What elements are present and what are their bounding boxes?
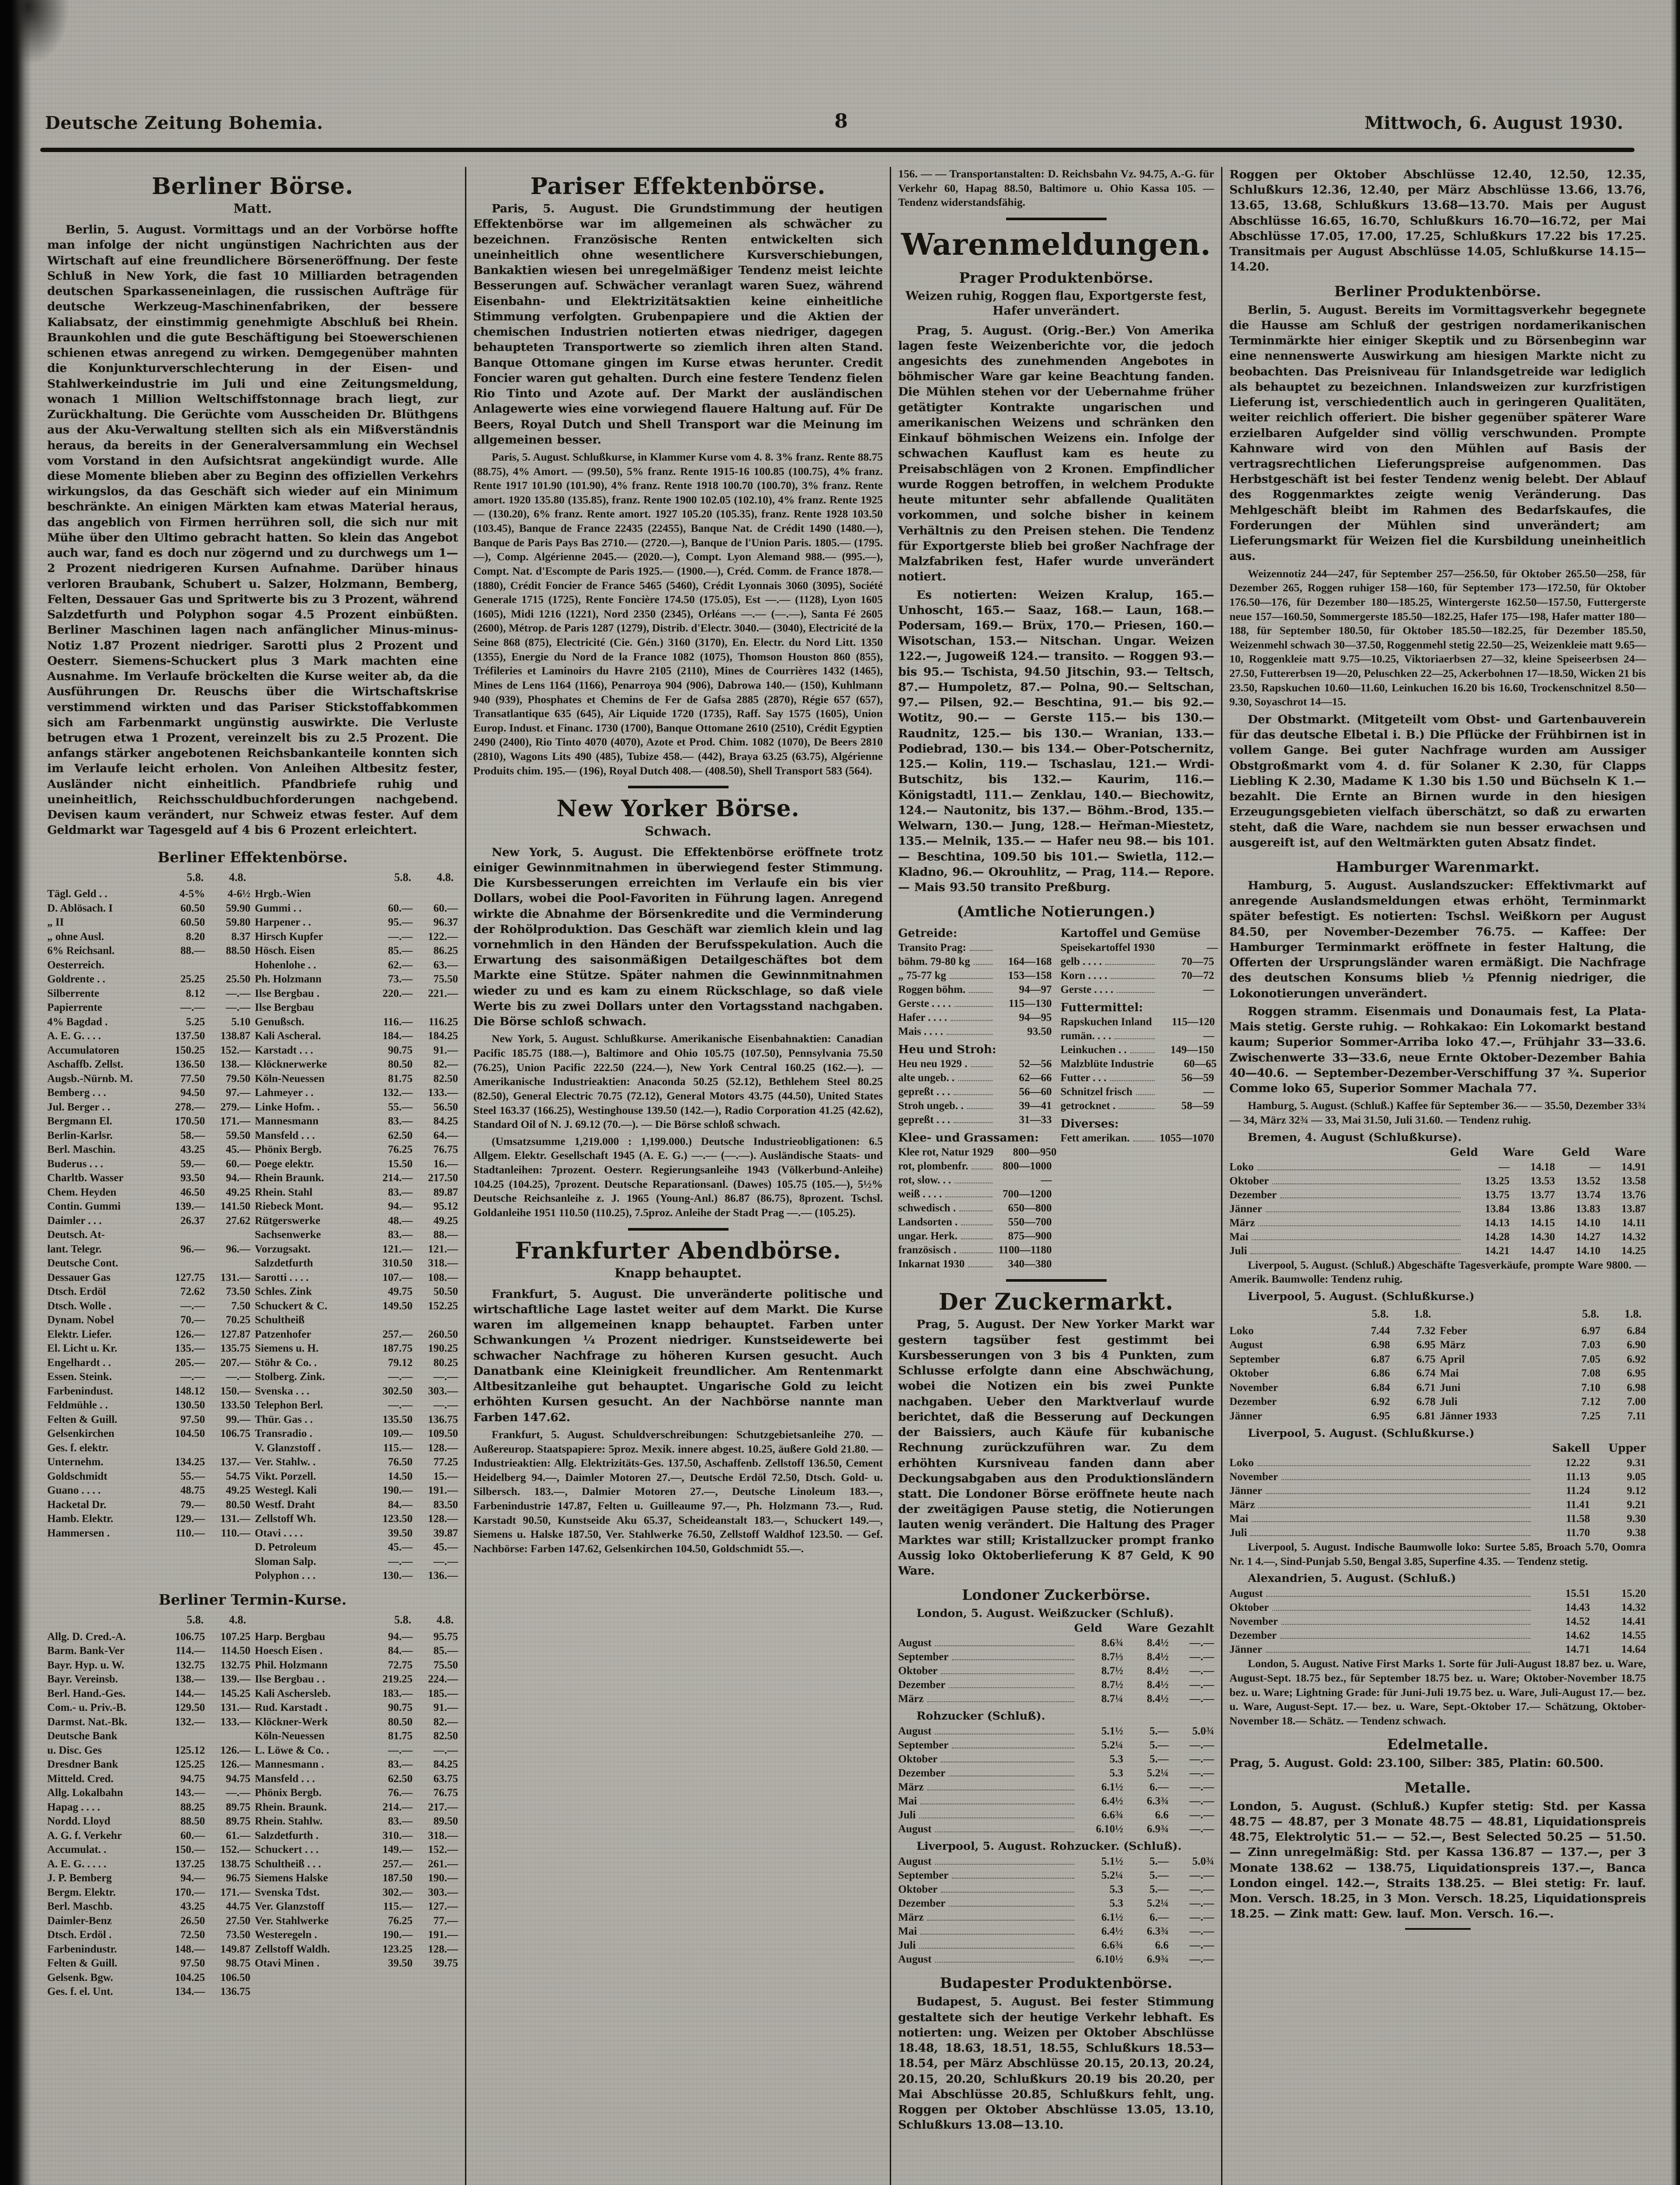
month: Jänner [1229,1484,1262,1498]
price-previous: 152.25 [413,1299,458,1314]
price-current: 25.25 [160,972,205,987]
price-current: 76.50 [367,1455,413,1470]
item-price: 62—66 [996,1071,1052,1085]
item-name: Leinkuchen . . [1061,1043,1127,1057]
month: Oktober [898,1752,937,1766]
security-name: Bergmann El. [47,1114,160,1129]
quote-row: Mannesmann . 83.— 84.25 [255,1758,458,1772]
cotton-row: November 11.13 9.05 [1229,1470,1646,1484]
quote-row: D. Petroleum 45.— 45.— [255,1540,458,1555]
security-name: 6% Reichsanl. [47,944,160,958]
quote-row: Ilse Bergbau . 220.— 221.— [255,987,458,1001]
price-row: Fett amerikan. 1055—1070 [1061,1131,1215,1145]
item-name: Inkarnat 1930 [898,1257,965,1271]
price-current: 85.— [367,944,413,958]
security-name: Rud. Karstadt . [255,1701,367,1715]
security-name: Accumulat. . [47,1843,160,1857]
security-name: Mitteld. Cred. [47,1772,160,1786]
upper-price: 9.30 [1590,1512,1646,1526]
price-current: 104.50 [160,1427,205,1441]
price-previous: 133.50 [205,1398,250,1413]
subheading-budapester-produktenboerse: Budapester Produktenbörse. [898,1974,1214,1991]
price-current: 115.— [367,1441,413,1456]
price-previous: 84.25 [413,1758,458,1772]
table-date-header: 5.8. 4.8. [255,1613,458,1627]
security-name: Schultheiß . . . [255,1857,367,1872]
quote-row: D. Ablösach. I 60.50 59.90 [47,902,250,916]
price-previous: 73.50 [205,1285,250,1299]
item-price: 60—65 [1161,1057,1217,1071]
quote-row: September 6.87 6.75 [1229,1353,1436,1367]
month: Loko [1229,1160,1254,1174]
ware: 5.— [1123,1883,1169,1897]
date-col-a: 5.8. [1582,1307,1599,1321]
price-rows: Fett amerikan. 1055—1070 [1061,1131,1215,1145]
quote-row: Linke Hofm. . 55.— 56.50 [255,1100,458,1115]
ware: 6.6 [1123,1808,1169,1822]
geld-a: 14.21 [1464,1244,1510,1258]
item-name: Rapskuchen Inland [1061,1015,1152,1029]
columns: Berliner Börse. Matt. Berlin, 5. August.… [40,167,1653,2185]
sakell-price: 11.70 [1534,1526,1590,1540]
quote-row: Dezember 6.92 6.78 [1229,1395,1436,1409]
leader-dots [954,1122,993,1123]
col-ware: Ware [1102,1622,1158,1634]
quote-row: Dtsch. Erdöl . 72.50 73.50 [47,1928,250,1942]
price-current: 6.86 [1345,1366,1390,1381]
price-previous: 76.75 [413,1786,458,1800]
price-current: 14.52 [1534,1615,1590,1629]
security-name: Chem. Heyden [47,1186,160,1200]
group-heu-stroh: Heu und Stroh: [898,1043,1052,1056]
price-previous: 64.— [413,1129,458,1143]
quote-row: Bergmann El. 170.50 171.— [47,1114,250,1129]
security-name: Hacketal Dr. [47,1498,160,1512]
price-current: 187.75 [367,1342,413,1356]
security-name: Deutsche Bank [47,1729,160,1744]
price-previous: —.— [413,1744,458,1758]
geld-b: 14.27 [1555,1230,1600,1244]
price-previous: 171.— [205,1114,250,1129]
quote-row: Schultheiß . . . 257.— 261.— [255,1857,458,1872]
cotton-row: Jänner 14.71 14.64 [1229,1643,1646,1657]
sakell-price: 11.24 [1534,1484,1590,1498]
caption-alexandrien: Alexandrien, 5. August. (Schluß.) [1229,1572,1646,1585]
security-name: Com.- u. Priv.-B. [47,1701,160,1715]
price-current: 8.20 [160,930,205,944]
ware-a: 14.18 [1510,1160,1555,1174]
item-name: Gerste . . . . [1061,983,1114,997]
quote-row: Hösch. Eisen 85.— 86.25 [255,944,458,958]
security-name: Essen. Steink. [47,1370,160,1384]
price-rows: Heu neu 1929 . 52—56 alte ungeb. . 62—66 [898,1057,1052,1127]
price-row: rot, plombenfr. 800—1000 [898,1159,1052,1173]
security-name: Farbenindust. [47,1384,160,1399]
security-name: Patzenhofer [255,1328,367,1342]
price-previous: 6.74 [1390,1366,1436,1381]
price-row: böhm. 79-80 kg 164—168 [898,955,1052,969]
item-price: 800—1000 [996,1159,1052,1173]
item-price: 52—56 [996,1057,1052,1071]
leader-dots [927,1701,1074,1702]
price-current: 6.92 [1345,1395,1390,1409]
price-previous: 279.— [205,1100,250,1115]
section-divider [628,786,729,788]
price-previous: 121.— [413,1242,458,1257]
price-previous: 99.— [205,1413,250,1427]
price-current: 170.50 [160,1114,205,1129]
price-previous: 50.50 [413,1285,458,1299]
quote-row: Ver. Stahlw. . 76.50 77.25 [255,1455,458,1470]
price-current: 81.75 [367,1729,413,1744]
geld: 6.1½ [1078,1911,1123,1925]
price-current: 14.43 [1534,1601,1590,1615]
price-previous: 136.75 [413,1413,458,1427]
leader-dots [960,1252,992,1253]
price-previous: 49.25 [205,1484,250,1498]
ware-a: 14.15 [1510,1216,1555,1230]
item-name: Schnitzel frisch [1061,1085,1133,1099]
price-previous: 6.90 [1600,1338,1646,1353]
quote-row: Westeregeln . 190.— 191.— [255,1928,458,1942]
price-previous: 88.50 [205,944,250,958]
subheading-hamburger-warenmarkt: Hamburger Warenmarkt. [1229,858,1646,875]
cotton-row: Dezember 14.62 14.55 [1229,1629,1646,1643]
prag-town-quotes: Es notierten: Weizen Kralup, 165.— Unhos… [898,587,1214,895]
geld: 5.2¼ [1078,1869,1123,1883]
price-current: 88.— [160,944,205,958]
price-current: 137.50 [160,1029,205,1044]
security-name: Kali Aschersleb. [255,1687,367,1701]
price-current: 116.— [367,1015,413,1030]
price-previous: 27.50 [205,1914,250,1928]
roggen-mais-continuation: Roggen per Oktober Abschlüsse 12.40, 12.… [1229,167,1646,275]
item-name: Hafer . . . . [898,1011,947,1025]
price-current: —.— [160,1001,205,1015]
price-previous: 184.25 [413,1029,458,1044]
price-row: Roggen böhm. 94—97 [898,983,1052,997]
termin-table-right: 5.8. 4.8. Harp. Bergbau 94.— 95.75 [255,1611,458,1999]
sugar-row: Oktober 8.7½ 8.4½ —.— [898,1664,1214,1678]
upper-price: 9.38 [1590,1526,1646,1540]
security-name: Deutsch. At- [47,1228,160,1242]
geld-b: 13.83 [1555,1202,1600,1216]
price-current: 79.— [160,1498,205,1512]
price-current: 220.— [367,987,413,1001]
price-current: 7.25 [1555,1409,1600,1424]
table-date-header: 5.8. 1.8. [1440,1307,1646,1321]
quote-row: Patzenhofer 257.— 260.50 [255,1328,458,1342]
sugar-table-header: Geld Ware Gezahlt [898,1622,1214,1634]
item-name: Speisekartoffel 1930 [1061,941,1155,955]
item-price: 115—120 [1159,1015,1215,1029]
quote-row: Zellstoff Waldh. 123.25 128.— [255,1942,458,1957]
item-price: 340—380 [996,1257,1052,1271]
item-name: weiß . . . . [898,1187,942,1201]
item-price: 39—41 [996,1099,1052,1113]
price-previous: 139.— [205,1672,250,1687]
security-name: Daimler-Benz [47,1914,160,1928]
quote-row: Gelsenk. Bgw. 104.25 106.50 [47,1971,250,1985]
price-previous: 128.— [413,1512,458,1526]
price-previous: —.— [205,1786,250,1800]
security-name: Elektr. Liefer. [47,1328,160,1342]
ware-b: 13.87 [1600,1202,1646,1216]
price-previous: 61.— [205,1829,250,1843]
price-current: 96.— [160,1242,205,1257]
item-price: — [996,1173,1052,1187]
security-name: Hammersen . [47,1526,160,1541]
price-current: —.— [160,1299,205,1314]
security-name: Köln-Neuessen [255,1729,367,1744]
quote-row: Mansfeld . . . 62.50 63.75 [255,1772,458,1786]
price-row: schwedisch . 650—800 [898,1201,1052,1215]
liverpool-cotton-table: 5.8. 1.8. Loko 7.44 7.32 [1229,1305,1646,1423]
quote-row: Köln-Neuessen 81.75 82.50 [255,1729,458,1744]
item-price: 1055—1070 [1158,1131,1214,1145]
price-previous: 150.— [205,1384,250,1399]
security-name: Gummi . . [255,902,367,916]
item-name: rot, plombenfr. [898,1159,968,1173]
price-current: 6.95 [1345,1409,1390,1424]
price-current: 72.62 [160,1285,205,1299]
leader-dots [969,992,992,993]
gezahlt: —.— [1169,1692,1214,1706]
security-name: Accumulatoren [47,1044,160,1058]
price-previous: 89.50 [413,1814,458,1829]
termin-table-left: 5.8. 4.8. Allg. D. Cred.-A. 106.75 107.2… [47,1611,250,1999]
column-warenmeldungen: 156. — — Transportanstalten: D. Reichsba… [890,167,1221,2185]
indische-baumwolle: Liverpool, 5. August. Indische Baumwolle… [1229,1540,1646,1568]
price-previous: 82.50 [413,1729,458,1744]
security-name: Ilse Bergbau [255,1001,367,1015]
date-col-b: 1.8. [1624,1307,1642,1321]
price-current: 7.12 [1555,1395,1600,1409]
caption-liverpool-table: Liverpool, 5. August. (Schlußkurse.) [1229,1290,1646,1303]
price-current: 7.10 [1555,1381,1600,1395]
price-previous: 14.55 [1590,1629,1646,1643]
price-previous: 145.25 [205,1687,250,1701]
price-current: 72.50 [160,1928,205,1942]
quote-row: Westf. Draht 84.— 83.50 [255,1498,458,1512]
month: Juli [898,1808,916,1822]
geld: 8.7⅓ [1078,1650,1123,1664]
leader-dots [1280,1197,1461,1198]
ware: 6.3¾ [1123,1794,1169,1808]
price-current: 130.50 [160,1398,205,1413]
quote-row: A. G. f. Verkehr 60.— 61.— [47,1829,250,1843]
quote-row: Hapag . . . . 88.25 89.75 [47,1800,250,1815]
quote-row: Mannesmann 83.— 84.25 [255,1114,458,1129]
price-previous: 133.— [205,1715,250,1730]
price-previous: 7.50 [205,1299,250,1314]
price-current: 76.25 [367,1914,413,1928]
quote-row: Berl. Maschin. 43.25 45.— [47,1143,250,1157]
quote-row: Essen. Steink. —.— —.— [47,1370,250,1384]
price-current: 278.— [160,1100,205,1115]
sugar-row: Juli 6.6¾ 6.6 —.— [898,1939,1214,1953]
price-previous: 15.20 [1590,1587,1646,1601]
geld: 6.10½ [1078,1822,1123,1836]
price-row: gepreßt . . . 56—60 [898,1085,1052,1099]
price-current: 129.— [160,1512,205,1526]
subheading-prager-produktenboerse: Prager Produktenbörse. [898,269,1214,286]
subheading-amtliche-notierungen: (Amtliche Notierungen.) [898,903,1214,920]
leader-dots [955,1183,992,1183]
geld-a: 14.28 [1464,1230,1510,1244]
quote-row: Nordd. Lloyd 88.50 89.75 [47,1814,250,1829]
price-previous: 303.— [413,1384,458,1399]
leader-dots [1281,1624,1531,1625]
security-name: Oesterreich. [47,958,160,973]
price-current: 77.50 [160,1072,205,1086]
price-row: Inkarnat 1930 340—380 [898,1257,1052,1271]
masthead-rule [40,148,1635,152]
security-name: Berl. Maschb. [47,1900,160,1914]
price-current: 49.75 [367,1285,413,1299]
price-previous: 70.25 [205,1313,250,1328]
security-name: Ges. f. elektr. [47,1441,160,1456]
sakell-price: 11.13 [1534,1470,1590,1484]
sugar-row: Dezember 8.7½ 8.4½ —.— [898,1678,1214,1692]
sugar-row: Dezember 5.3 5.2¼ —.— [898,1766,1214,1780]
quote-row: Goldschmidt 55.— 54.75 [47,1470,250,1484]
quote-row: Zellstoff Wh. 123.50 128.— [255,1512,458,1526]
month: März [898,1911,923,1925]
quote-row: Kali Ascheral. 184.— 184.25 [255,1029,458,1044]
ware: 6.6 [1123,1939,1169,1953]
quote-row: Transradio . 109.— 109.50 [255,1427,458,1441]
price-previous: 49.25 [205,1186,250,1200]
price-previous: 224.— [413,1672,458,1687]
quote-row: Charltb. Wasser 93.50 94.— [47,1171,250,1186]
price-previous: 44.75 [205,1900,250,1914]
geld-b: — [1555,1160,1600,1174]
leader-dots [935,1962,1074,1963]
quote-row: Oktober 6.86 6.74 [1229,1366,1436,1381]
price-current: 170.— [160,1886,205,1900]
quote-row: Dynam. Nobel 70.— 70.25 [47,1313,250,1328]
price-previous: —.— [205,1370,250,1384]
geld-a: 14.13 [1464,1216,1510,1230]
security-name: Hirsch Kupfer [255,930,367,944]
security-name: Köln-Neuessen [255,1072,367,1086]
quote-row: Bayr. Vereinsb. 138.— 139.— [47,1672,250,1687]
geld: 6.6¾ [1078,1808,1123,1822]
month: September [1229,1353,1345,1367]
price-current: 7.44 [1345,1324,1390,1339]
price-previous: 94.— [205,1171,250,1186]
quote-row: Stolberg. Zink. —.— —.— [255,1370,458,1384]
price-current: 73.— [367,972,413,987]
date-col-a: 5.8. [394,1613,411,1627]
leader-dots [920,1934,1074,1935]
price-previous: 6.71 [1390,1381,1436,1395]
quote-row: Ver. Glanzstoff 115.— 127.— [255,1900,458,1914]
month: Jänner [1229,1202,1262,1216]
month: Oktober [1229,1601,1269,1615]
gezahlt: 5.0¾ [1169,1724,1214,1738]
price-current: 132.— [160,1715,205,1730]
price-previous: 16.— [413,1157,458,1172]
geld: 6.4½ [1078,1794,1123,1808]
sugar-row: März 8.7¼ 8.4½ —.— [898,1692,1214,1706]
date-col-b: 4.8. [229,870,246,885]
price-previous: 6.75 [1390,1353,1436,1367]
security-name: Hohenlohe . . [255,958,367,973]
price-previous: 6.84 [1600,1324,1646,1339]
quote-row: Ges. f. el. Unt. 134.— 136.75 [47,1985,250,1999]
price-previous: 63.75 [413,1772,458,1786]
item-price: — [1158,983,1214,997]
official-quotes-left: Getreide: Transito Prag: böhm. 79-80 kg [898,923,1052,1271]
price-current: 219.25 [367,1672,413,1687]
quote-row: Felten & Guill. 97.50 99.— [47,1413,250,1427]
quote-row: Deutsche Cont. [47,1256,250,1271]
cotton-row: Mai 14.28 14.30 14.27 14.32 [1229,1230,1646,1244]
quote-row: 6% Reichsanl. 88.— 88.50 [47,944,250,958]
price-current: 134.25 [160,1455,205,1470]
item-name: französisch . [898,1243,956,1257]
security-name: Hoesch Eisen . [255,1644,367,1658]
quote-row: L. Löwe & Co. . —.— —.— [255,1744,458,1758]
price-previous: 45.— [413,1540,458,1555]
date-col-b: 4.8. [437,1613,454,1627]
leader-dots [949,1687,1074,1688]
leader-dots [1114,1038,1155,1039]
month: Dezember [1229,1395,1345,1409]
item-price: 800—950 [1000,1145,1056,1159]
price-previous: 260.50 [413,1328,458,1342]
quote-row: Kali Aschersleb. 183.— 185.— [255,1687,458,1701]
quote-row: Ver. Stahlwerke 76.25 77.— [255,1914,458,1928]
security-name: Schles. Zink [255,1285,367,1299]
price-current: 257.— [367,1857,413,1872]
section-heading-new-yorker-boerse: New Yorker Börse. [473,796,883,822]
geld: 8.7½ [1078,1664,1123,1678]
subheading-metalle: Metalle. [1229,1779,1646,1796]
price-current: 310.— [367,1829,413,1843]
sugar-row: Dezember 5.3 5.2¼ —.— [898,1897,1214,1911]
item-name: Roggen böhm. [898,983,965,997]
month: Feber [1440,1324,1555,1339]
item-price: — [1158,1085,1214,1099]
price-row: Landsorten . 550—700 [898,1215,1052,1229]
price-row: „ 75-77 kg 153—158 [898,969,1052,983]
price-previous: 96.75 [205,1871,250,1886]
price-previous: 107.25 [205,1630,250,1644]
ware: 8.4½ [1123,1692,1169,1706]
sugar-row: September 5.2¼ 5.— —.— [898,1869,1214,1883]
leader-dots [1117,992,1155,993]
ware-a: 13.86 [1510,1202,1555,1216]
price-previous: 82.— [413,1715,458,1730]
leader-dots [935,1734,1074,1734]
quote-row: Svenska Tdst. 302.— 303.— [255,1886,458,1900]
price-current: 88.25 [160,1800,205,1815]
leader-dots [970,950,993,951]
price-previous: 89.87 [413,1186,458,1200]
sakell-price: 11.58 [1534,1512,1590,1526]
price-previous: 7.00 [1600,1395,1646,1409]
price-current: 84.— [367,1644,413,1658]
price-current: 6.97 [1555,1324,1600,1339]
geld-a: 13.25 [1464,1174,1510,1188]
quote-row: 4% Bagdad . 5.25 5.10 [47,1015,250,1030]
month: März [898,1692,923,1706]
price-previous: 88.— [413,1228,458,1242]
security-name: Allg. D. Cred.-A. [47,1630,160,1644]
